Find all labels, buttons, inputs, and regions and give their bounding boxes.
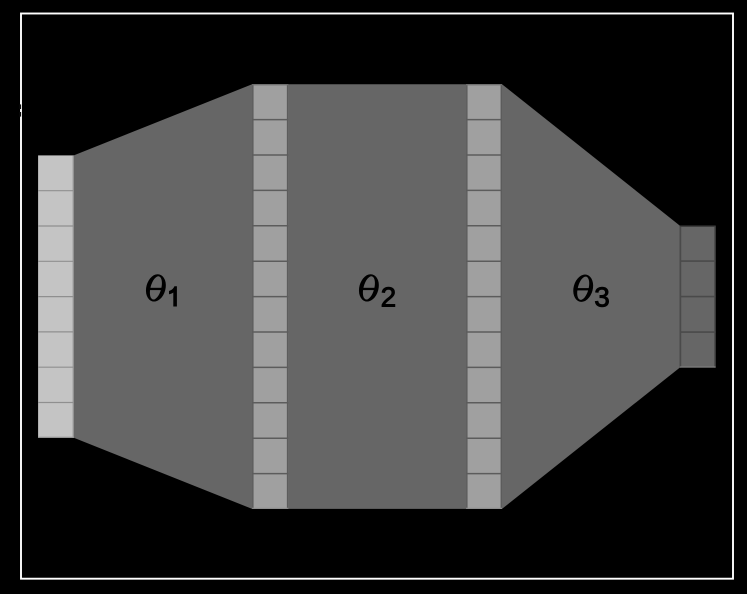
svg-text:3: 3 <box>594 282 610 313</box>
svg-text:2: 2 <box>381 281 397 312</box>
